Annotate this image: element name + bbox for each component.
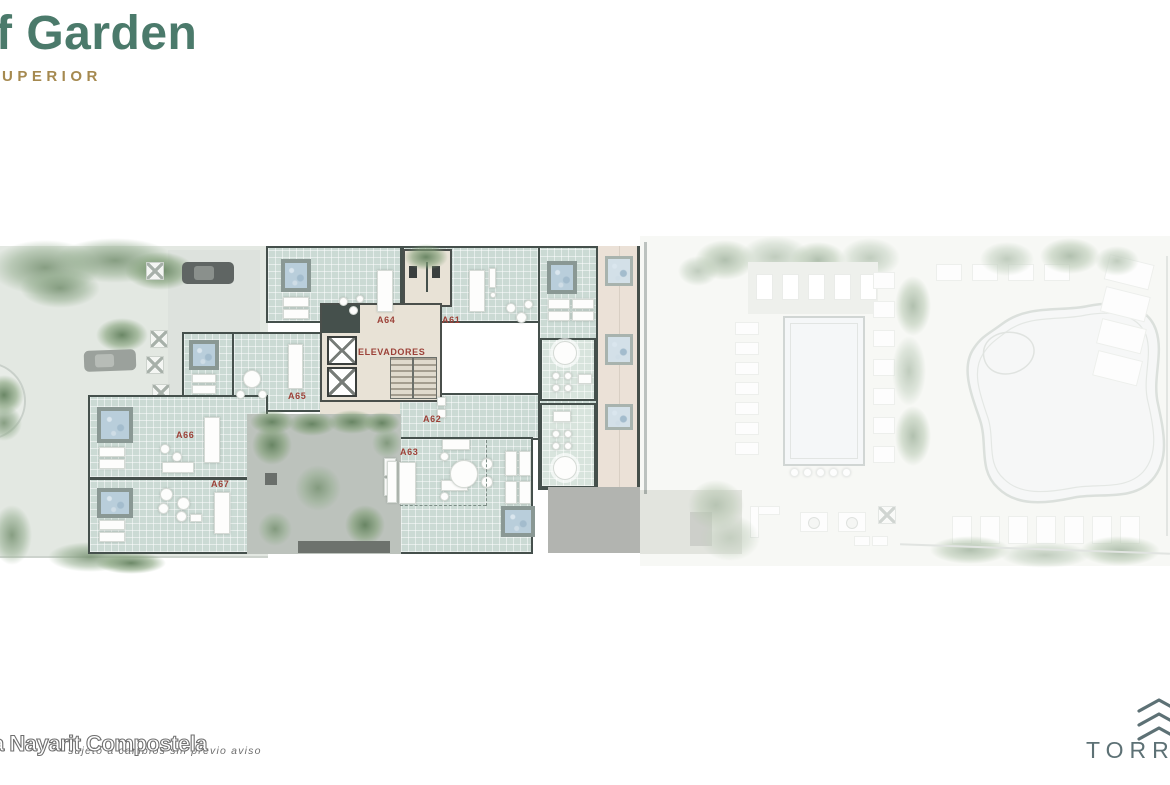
- skylight: [782, 274, 799, 300]
- skylight: [756, 274, 773, 300]
- pool-step: [829, 468, 838, 477]
- pool-step: [816, 468, 825, 477]
- terrace-table: [873, 388, 895, 405]
- elevators-label: ELEVADORES: [358, 347, 425, 357]
- jacuzzi-a65: [189, 340, 219, 370]
- furniture-lounger: [572, 299, 594, 309]
- terrace-table: [873, 301, 895, 318]
- furniture-lounger: [505, 451, 517, 476]
- elevator-shaft: [327, 336, 357, 365]
- furniture-chair: [160, 444, 170, 454]
- furniture-table: [204, 417, 220, 463]
- furniture-lounger: [505, 481, 517, 504]
- furniture-lounger: [548, 299, 570, 309]
- boundary-line: [1166, 256, 1168, 536]
- tree: [20, 268, 100, 308]
- pool-lounger: [936, 264, 962, 281]
- tree: [1040, 238, 1100, 274]
- furniture-lounger: [283, 309, 309, 319]
- furniture-chair: [481, 476, 493, 488]
- roof-garden-plan-page: f Garden UPERIOR ELEVADORES: [0, 0, 1170, 785]
- pool-lounger: [854, 536, 870, 546]
- furniture-chair: [564, 372, 572, 380]
- furniture-chair: [160, 488, 173, 501]
- furniture-table: [553, 411, 571, 422]
- kitchen-island: [800, 512, 828, 532]
- furniture-chair: [258, 390, 267, 399]
- courtyard-tree: [252, 425, 292, 465]
- terrace-table: [873, 417, 895, 434]
- unit-label-a63: A63: [400, 447, 418, 457]
- jacuzzi-a67: [97, 488, 133, 518]
- furniture-bench: [387, 461, 397, 503]
- furniture-chair: [524, 300, 533, 309]
- furniture-table: [377, 270, 393, 312]
- pool-lounger: [1036, 516, 1056, 544]
- furniture-lounger: [99, 459, 125, 469]
- furniture-sofa: [162, 462, 194, 473]
- car: [84, 349, 137, 372]
- waves-logo-icon: [1136, 696, 1170, 742]
- plunge-pool: [605, 334, 633, 365]
- lap-pool: [783, 316, 865, 466]
- furniture-chair: [552, 384, 560, 392]
- pool-lounger: [735, 382, 759, 395]
- hedge: [895, 276, 931, 336]
- terrace-table: [873, 446, 895, 463]
- pool-lounger: [1008, 516, 1028, 544]
- car-roof: [95, 354, 114, 368]
- bar-counter: [750, 506, 759, 538]
- furniture-round-table: [553, 456, 577, 480]
- furniture-lounger: [572, 311, 594, 321]
- brand-logo-text: TORRE: [1086, 737, 1170, 764]
- furniture-chair: [236, 390, 245, 399]
- furniture-chair: [552, 372, 560, 380]
- furniture-chair: [356, 295, 364, 303]
- furniture-chair: [339, 297, 348, 306]
- tree: [1095, 246, 1139, 276]
- furniture-table: [214, 492, 230, 534]
- tree: [980, 242, 1034, 276]
- paver-tile: [146, 262, 164, 280]
- page-subtitle: UPERIOR: [2, 68, 102, 85]
- furniture-chair: [552, 442, 560, 450]
- kitchen-island: [838, 512, 866, 532]
- unit-label-a67: A67: [211, 479, 229, 489]
- paver-tile: [146, 356, 164, 374]
- furniture-table: [399, 462, 416, 504]
- furniture-chair: [440, 492, 449, 501]
- unit-label-a64: A64: [377, 315, 395, 325]
- page-title: f Garden: [0, 6, 197, 61]
- furniture-chair: [490, 292, 496, 298]
- pool-lounger: [735, 342, 759, 355]
- jacuzzi-a66: [97, 407, 133, 443]
- furniture-table: [469, 270, 485, 312]
- furniture-lounger: [192, 385, 216, 394]
- unit-label-a66: A66: [176, 430, 194, 440]
- furniture-chair: [177, 497, 190, 510]
- car-roof: [194, 266, 214, 280]
- furniture-sofa: [442, 439, 470, 450]
- furniture-chair: [552, 430, 560, 438]
- furniture-table: [578, 374, 592, 384]
- skylight: [808, 274, 825, 300]
- pool-lounger: [735, 442, 759, 455]
- furniture-chair: [176, 511, 187, 522]
- furniture-lounger: [283, 297, 309, 307]
- furniture-chair: [564, 430, 572, 438]
- furniture-chair: [158, 503, 169, 514]
- furniture-lounger: [192, 374, 216, 383]
- watermark-text: a Nayarit Compostela: [0, 731, 207, 757]
- hedge: [892, 336, 926, 406]
- boundary-wall: [644, 242, 647, 494]
- courtyard-tree: [372, 428, 402, 458]
- terrace-boundary-dashed: [400, 505, 486, 506]
- terrace-boundary-dashed: [486, 440, 487, 506]
- jacuzzi-a64: [281, 259, 311, 292]
- furniture-chair: [172, 452, 182, 462]
- stair-rail: [412, 357, 414, 399]
- pool-lounger: [735, 402, 759, 415]
- furniture-round-table: [553, 341, 577, 365]
- dining-table: [878, 506, 896, 524]
- pool-step: [803, 468, 812, 477]
- lower-roof: [548, 487, 640, 553]
- tree: [96, 318, 148, 352]
- pool-step: [790, 468, 799, 477]
- hedge: [1000, 542, 1090, 568]
- furniture-lounger: [99, 447, 125, 457]
- car: [182, 262, 234, 284]
- terrace-table: [873, 330, 895, 347]
- courtyard-dark-band: [298, 541, 390, 553]
- furniture-lounger: [99, 520, 125, 530]
- courtyard-tree: [345, 505, 385, 545]
- paver-tile: [150, 330, 168, 348]
- plunge-pool: [605, 404, 633, 430]
- furniture-chair: [349, 306, 358, 315]
- furniture-lounger: [519, 451, 531, 476]
- terrace-table: [873, 272, 895, 289]
- unit-label-a61: A61: [442, 315, 460, 325]
- pool-lounger: [735, 362, 759, 375]
- planter-box: [265, 473, 277, 485]
- skylight: [834, 274, 851, 300]
- jacuzzi-terrace: [547, 261, 577, 294]
- furniture-table: [437, 397, 446, 406]
- furniture-round-table: [450, 460, 478, 488]
- furniture-round-table: [243, 370, 261, 388]
- pool-lounger: [1064, 516, 1084, 544]
- furniture-table: [288, 344, 303, 389]
- furniture-bench: [489, 268, 496, 288]
- pool-lounger: [735, 322, 759, 335]
- furniture-table: [190, 514, 202, 522]
- unit-label-a62: A62: [423, 414, 441, 424]
- furniture-chair: [440, 452, 449, 461]
- furniture-chair: [516, 312, 527, 323]
- hedge: [930, 536, 1010, 564]
- furniture-lounger: [99, 532, 125, 542]
- amenity-zone-faded: [640, 236, 1170, 566]
- palm-tree: [404, 244, 448, 270]
- pool-step: [842, 468, 851, 477]
- unit-label-a65: A65: [288, 391, 306, 401]
- furniture-chair: [506, 303, 516, 313]
- lap-pool-inner-line: [790, 323, 858, 459]
- elevator-shaft: [327, 367, 357, 397]
- furniture-chair: [564, 442, 572, 450]
- courtyard-tree: [258, 512, 292, 546]
- pool-lounger: [872, 536, 888, 546]
- tree: [96, 552, 166, 574]
- furniture-chair: [564, 384, 572, 392]
- pool-lounger: [735, 422, 759, 435]
- hedge: [895, 406, 931, 466]
- courtyard-tree: [295, 465, 341, 511]
- plunge-pool: [605, 256, 633, 286]
- furniture-lounger: [519, 481, 531, 504]
- jacuzzi-a63: [501, 506, 535, 537]
- grill-icon: [846, 517, 858, 529]
- furniture-chair: [481, 458, 493, 470]
- grill-icon: [808, 517, 820, 529]
- furniture-lounger: [548, 311, 570, 321]
